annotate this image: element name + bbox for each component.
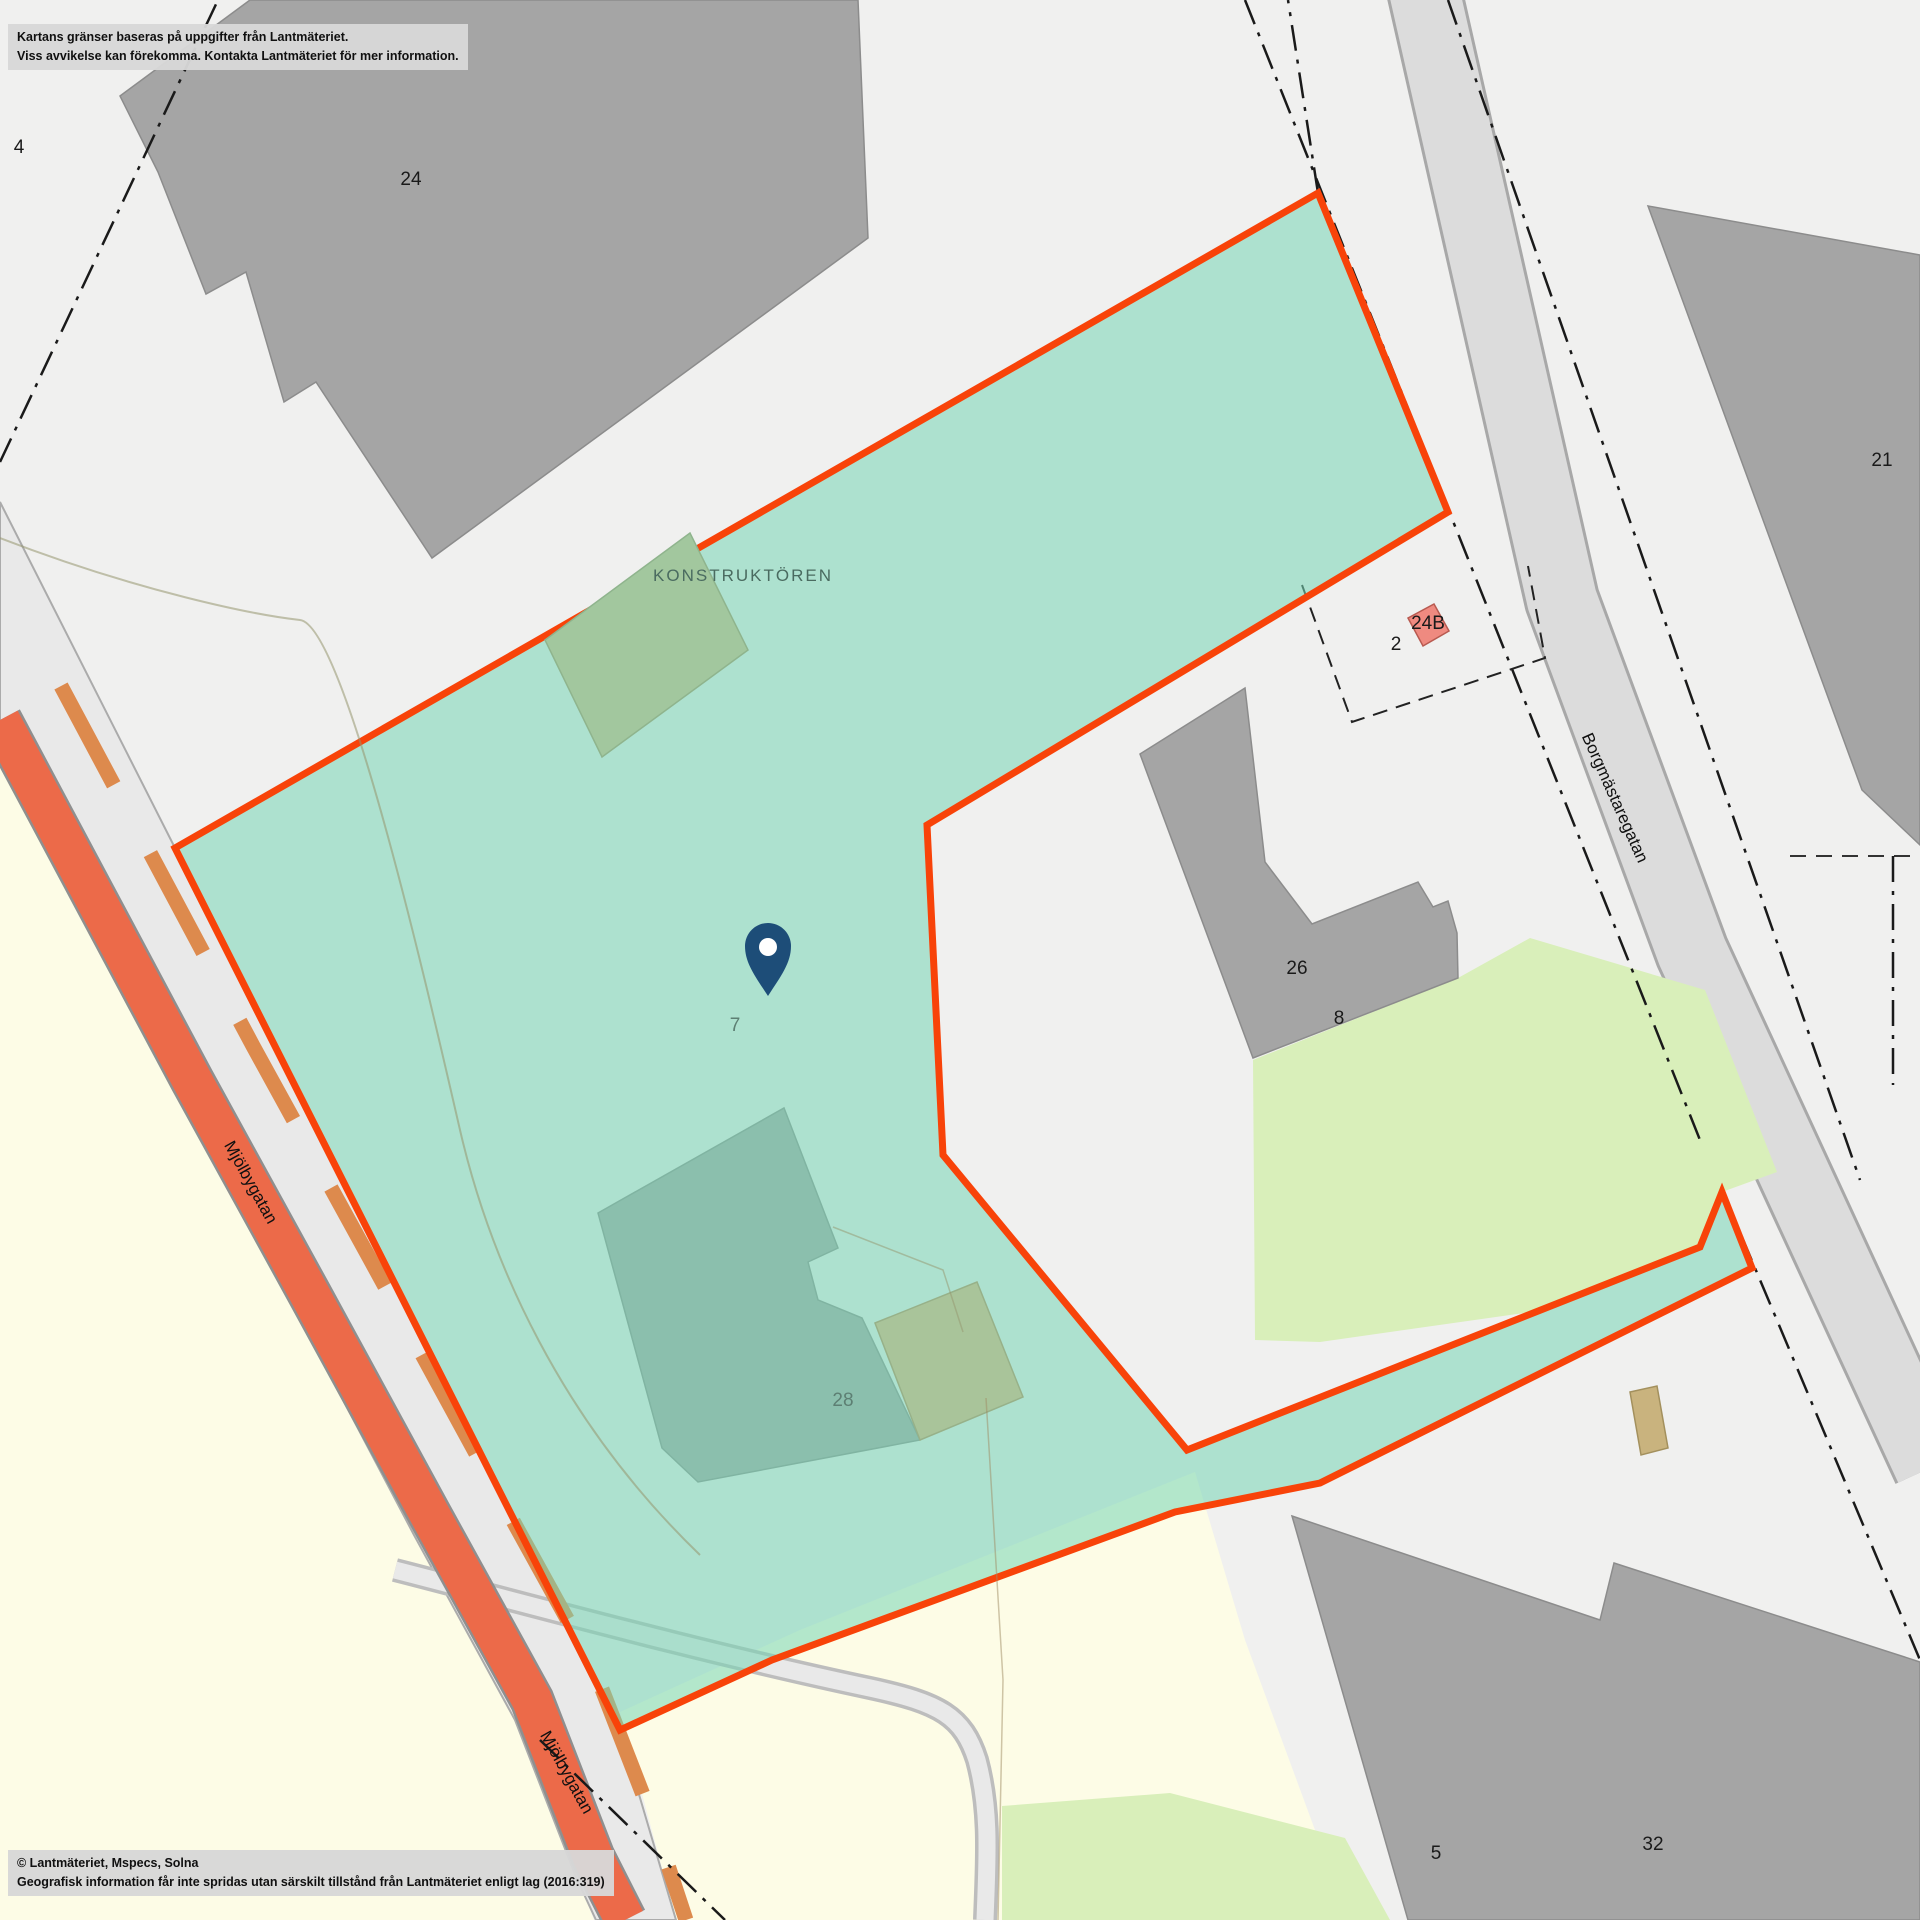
label-building-32: 32	[1642, 1834, 1663, 1855]
label-building-24: 24	[400, 169, 422, 190]
label-plot-2: 2	[1391, 634, 1402, 655]
label-building-21: 21	[1871, 450, 1892, 471]
label-building-28: 28	[832, 1390, 853, 1411]
label-building-26: 26	[1286, 958, 1307, 979]
label-building-24b: 24B	[1411, 613, 1445, 634]
label-plot-4: 4	[14, 137, 25, 158]
label-plot-5: 5	[1431, 1843, 1442, 1864]
label-property-name: KONSTRUKTÖREN	[653, 566, 833, 585]
map-pin-hole	[759, 938, 777, 956]
copyright-line1: © Lantmäteriet, Mspecs, Solna	[17, 1854, 605, 1873]
label-plot-7: 7	[730, 1015, 741, 1036]
attribution-line1: Kartans gränser baseras på uppgifter frå…	[17, 28, 459, 47]
attribution-box: Kartans gränser baseras på uppgifter frå…	[8, 24, 468, 70]
attribution-line2: Viss avvikelse kan förekomma. Kontakta L…	[17, 47, 459, 66]
copyright-box: © Lantmäteriet, Mspecs, Solna Geografisk…	[8, 1850, 614, 1896]
label-plot-8: 8	[1334, 1008, 1345, 1029]
copyright-line2: Geografisk information får inte spridas …	[17, 1873, 605, 1892]
map-canvas[interactable]: KONSTRUKTÖREN 7 28 24 4 21 2 24B 26 8 5 …	[0, 0, 1920, 1920]
